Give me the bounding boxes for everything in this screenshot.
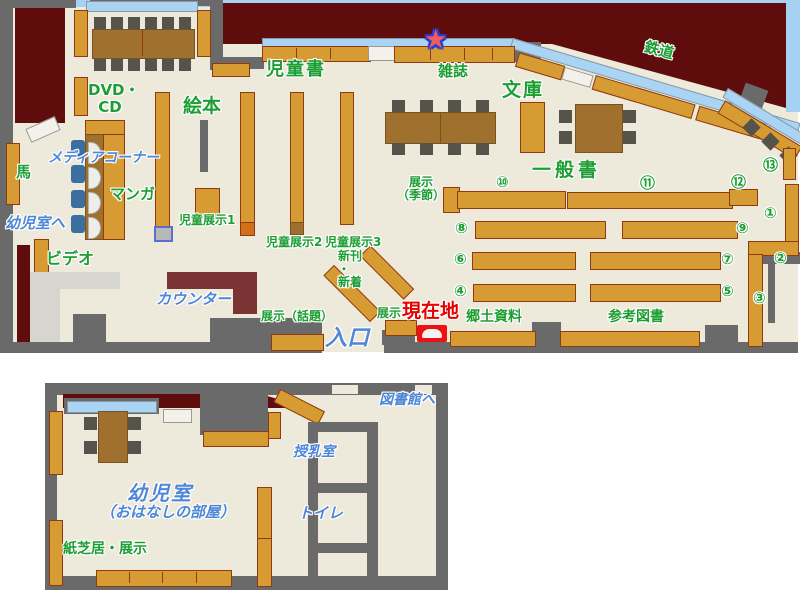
label-new-arrivals: 新刊 ・ 新着 — [338, 250, 362, 290]
shelf-divider — [330, 48, 331, 59]
chair — [476, 143, 489, 155]
chair — [162, 17, 174, 29]
closed-area-left-bar — [17, 245, 30, 343]
shelf-number-7: ⑦ — [721, 251, 734, 268]
shelf-divider — [196, 572, 197, 583]
bookshelf-9 — [622, 221, 738, 239]
display-shelf — [385, 320, 417, 336]
reading-table — [440, 112, 496, 144]
chair — [145, 17, 157, 29]
label-infant-room: 幼児室 — [127, 482, 193, 504]
chair — [128, 417, 141, 430]
label-media-corner: メディアコーナー — [48, 151, 159, 166]
reading-table — [575, 104, 623, 153]
closed-area-top-left — [15, 7, 65, 123]
label-counter: カウンター — [156, 291, 231, 308]
label-manga: マンガ — [110, 186, 155, 203]
chair — [128, 17, 140, 29]
library-floor-map: ★ — [0, 0, 800, 590]
bookshelf-end — [290, 222, 304, 235]
bookshelf — [290, 92, 304, 224]
shelf-number-8: ⑧ — [455, 220, 468, 237]
display-case — [163, 409, 192, 423]
wall-top-a — [13, 0, 76, 8]
label-reference-books: 参考図書 — [608, 310, 664, 325]
shelf-number-3: ③ — [753, 290, 766, 307]
chair — [84, 441, 97, 454]
bookshelf — [520, 102, 545, 153]
chair — [128, 59, 140, 71]
chair — [111, 17, 123, 29]
shelf-number-12: ⑫ — [731, 174, 746, 191]
bookshelf — [74, 10, 88, 57]
chair — [448, 100, 461, 112]
label-entrance: 入口 — [325, 327, 369, 351]
bookshelf-4 — [473, 284, 576, 302]
bookshelf — [394, 46, 515, 63]
shelf-number-13: ⑬ — [763, 157, 778, 174]
chair — [623, 110, 636, 123]
shelf-number-10: ⑩ — [496, 174, 509, 191]
chair — [392, 143, 405, 155]
bookshelf-13 — [783, 148, 796, 180]
label-display-topics: 展示（話題） — [261, 310, 333, 323]
chair — [420, 143, 433, 155]
chair — [71, 165, 85, 183]
chair — [71, 215, 85, 233]
label-dvd-cd: DVD・ CD — [88, 82, 132, 115]
bookshelf — [340, 92, 354, 225]
chair — [179, 59, 191, 71]
shelf-number-6: ⑥ — [454, 251, 467, 268]
bookshelf-end — [240, 222, 255, 236]
chair — [84, 417, 97, 430]
label-children-display-2: 児童展示2 — [266, 236, 322, 249]
annex-wall-right — [436, 383, 448, 590]
bookshelf-6 — [472, 252, 576, 270]
picture-story-shelf — [49, 520, 63, 586]
shelf-number-1: ① — [764, 205, 777, 222]
label-magazines: 雑誌 — [438, 63, 468, 80]
chair — [145, 59, 157, 71]
label-display: 展示 — [377, 307, 401, 320]
chair — [111, 59, 123, 71]
bookshelf — [268, 412, 281, 439]
wall-pillar — [532, 322, 561, 344]
picture-story-shelf — [49, 411, 63, 475]
label-childrens-books: 児童書 — [266, 60, 326, 80]
annex-vestibule — [200, 385, 268, 435]
reading-table — [385, 112, 441, 144]
display-case — [368, 46, 396, 61]
reading-table — [98, 411, 128, 463]
shelf-number-9: ⑨ — [736, 220, 749, 237]
bookshelf-10 — [457, 191, 566, 209]
chair — [559, 110, 572, 123]
chair — [94, 59, 106, 71]
chair — [94, 17, 106, 29]
label-nursing-room: 授乳室 — [293, 445, 335, 460]
bookshelf — [96, 570, 232, 587]
label-paperbacks: 文庫 — [502, 80, 544, 101]
bookshelf — [257, 538, 272, 587]
chair — [162, 59, 174, 71]
bookshelf-8 — [475, 221, 606, 239]
label-toilet: トイレ — [298, 505, 343, 522]
service-counter — [233, 289, 257, 314]
chair — [559, 131, 572, 144]
sky-right-strip — [786, 0, 800, 112]
annex-door-opening — [332, 385, 358, 394]
bookshelf-5 — [590, 284, 721, 302]
magazine-star-icon: ★ — [424, 27, 447, 53]
bookshelf — [212, 63, 250, 77]
bookshelf — [203, 431, 269, 447]
table-divider — [142, 30, 143, 56]
local-materials-shelf — [450, 331, 536, 347]
annex-room-wall — [367, 422, 378, 576]
label-picture-books: 絵本 — [183, 96, 221, 117]
label-children-display-3: 児童展示3 — [325, 236, 381, 249]
bookshelf-1 — [785, 184, 799, 246]
chair — [623, 131, 636, 144]
counter-side — [30, 272, 60, 342]
shelf-number-5: ⑤ — [721, 283, 734, 300]
reading-table — [92, 29, 195, 59]
shelf-number-2: ② — [774, 250, 787, 267]
topic-display-shelf — [271, 334, 324, 351]
chair — [420, 100, 433, 112]
chair — [448, 143, 461, 155]
chair — [392, 100, 405, 112]
label-picture-story-display: 紙芝居・展示 — [63, 542, 147, 557]
bookshelf — [74, 77, 88, 116]
label-current-location: 現在地 — [402, 301, 459, 322]
chair — [476, 100, 489, 112]
shelf-number-4: ④ — [454, 283, 467, 300]
wall-pillar — [705, 325, 738, 344]
shelf-divider — [129, 572, 130, 583]
shelf-divider — [162, 572, 163, 583]
shelf-number-11: ⑪ — [640, 175, 655, 192]
reference-books-shelf — [560, 331, 700, 347]
display-stand — [154, 226, 173, 242]
marker-symbol — [422, 329, 442, 338]
window — [86, 1, 198, 12]
label-general-books: 一般書 — [532, 160, 601, 181]
label-story-room: （おはなしの部屋） — [100, 504, 235, 521]
chair — [179, 17, 191, 29]
bookshelf-7 — [590, 252, 721, 270]
label-children-display-1: 児童展示1 — [179, 214, 235, 227]
wall-right-v — [768, 263, 775, 323]
chair — [71, 190, 85, 208]
shelf-divider — [296, 48, 297, 59]
label-to-infant-room: 幼児室へ — [5, 215, 65, 232]
bookshelf — [240, 92, 255, 224]
shelf-divider — [492, 48, 493, 60]
service-counter — [167, 272, 257, 289]
label-horse: 馬 — [16, 164, 31, 181]
bookshelf-11 — [567, 192, 733, 209]
chair — [128, 441, 141, 454]
bookshelf — [257, 487, 272, 540]
label-display-seasonal: 展示 （季節） — [396, 176, 446, 202]
current-location-marker — [417, 325, 447, 342]
bookshelf-12 — [729, 189, 758, 206]
shelf-divider — [464, 48, 465, 60]
label-to-library: 図書館へ — [379, 393, 435, 408]
bookshelf — [197, 10, 211, 57]
partition — [200, 120, 208, 172]
wall-pillar — [73, 314, 106, 344]
label-local-materials: 郷土資料 — [466, 310, 522, 325]
label-video: ビデオ — [46, 250, 94, 268]
